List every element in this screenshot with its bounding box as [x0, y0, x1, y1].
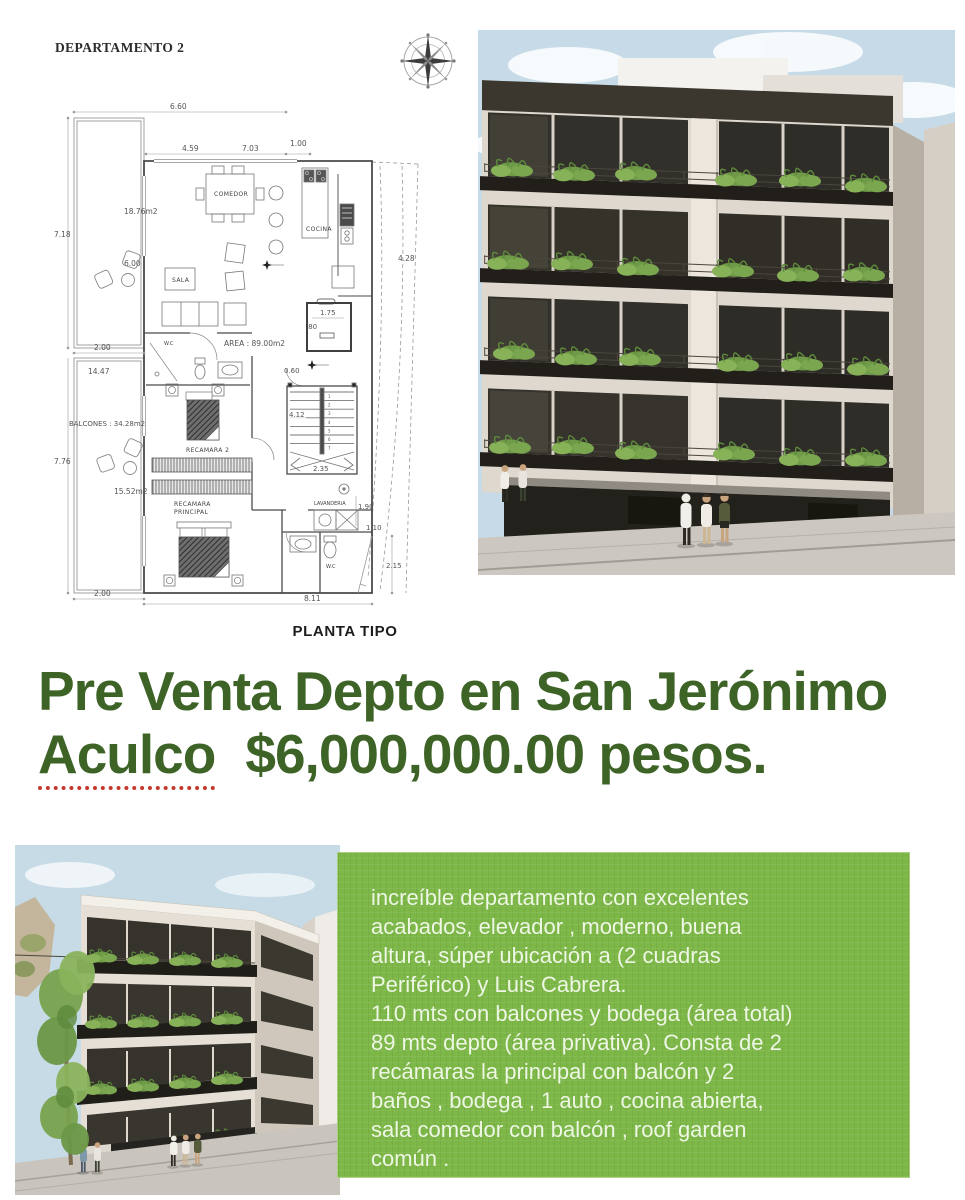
master-bed: [164, 522, 243, 586]
room-wc1: W.C: [164, 341, 174, 347]
level-markers: [262, 260, 329, 370]
floorplan-title: DEPARTAMENTO 2: [55, 40, 184, 56]
building-side: [893, 125, 924, 575]
dim-811: 8.11: [304, 594, 321, 603]
dim-1447: 14.47: [88, 367, 110, 376]
dim-200a: 2.00: [94, 343, 111, 352]
neighbor-wall: [924, 122, 955, 575]
dim-100: 1.00: [290, 139, 307, 148]
dim-428: 4.28: [398, 254, 415, 263]
dim-703: 7.03: [242, 144, 259, 153]
label-balcones: BALCONES : 34.28m2: [69, 420, 145, 428]
label-area: AREA : 89.00m2: [224, 339, 285, 348]
headline-line1: Pre Venta Depto en San Jerónimo: [38, 660, 950, 722]
description-box: increíble departamento con excelentes ac…: [337, 852, 910, 1178]
svg-text:7: 7: [328, 446, 331, 451]
dim-110: 1.10: [366, 524, 382, 532]
headline-price: $6,000,000.00 pesos.: [245, 723, 766, 785]
dim-060: 0.60: [284, 367, 300, 375]
svg-text:2: 2: [328, 403, 331, 408]
stairs: [287, 383, 357, 474]
balcony-chairs-upper: [94, 250, 141, 289]
living-furniture: [162, 243, 246, 326]
room-comedor: COMEDOR: [214, 191, 248, 198]
headline-city: Aculco: [38, 723, 215, 790]
dim-215: 2.15: [386, 562, 402, 570]
svg-text:4: 4: [328, 420, 331, 425]
laundry: [314, 484, 358, 530]
cloud: [215, 873, 315, 897]
stair-numbers: 1 2 3 4 5 6 7: [328, 394, 331, 451]
svg-text:3: 3: [328, 411, 331, 416]
flyer-page: DEPARTAMENTO 2: [0, 0, 965, 1200]
svg-text:1: 1: [328, 394, 331, 399]
dim-190: 1.90: [358, 503, 374, 511]
building-render-corner: [15, 845, 340, 1195]
dim-718: 7.18: [54, 230, 71, 239]
label-area-lower: 15.52m2: [114, 487, 148, 496]
room-recamara-p2: PRINCIPAL: [174, 509, 209, 516]
headline: Pre Venta Depto en San Jerónimo Aculco$6…: [38, 660, 950, 786]
room-recamara-p1: RECAMARA: [174, 501, 211, 508]
balcony-chairs-lower: [96, 438, 143, 475]
compass-rose-icon: [396, 29, 460, 93]
cloud: [25, 862, 115, 888]
dim-776: 7.76: [54, 457, 71, 466]
dim-412: 4.12: [289, 411, 305, 419]
floorplan-drawing: 6.60 4.59 7.03 1.00 7.18 6.00 2.00 14.47…: [54, 96, 464, 620]
svg-text:6: 6: [328, 437, 331, 442]
wardrobe: [152, 458, 252, 494]
dim-600: 6.00: [124, 259, 141, 268]
bedroom2-furniture: [166, 384, 224, 440]
hill-green: [20, 934, 46, 952]
description-text: increíble departamento con excelentes ac…: [371, 883, 889, 1173]
room-cocina: COCINA: [306, 226, 332, 233]
dim-459: 4.59: [182, 144, 199, 153]
svg-text:5: 5: [328, 428, 331, 433]
balcony-outlines: [74, 118, 144, 593]
room-lavanderia: LAVANDERIA: [314, 501, 346, 507]
label-area-upper: 18.76m2: [124, 207, 158, 216]
dim-175: 1.75: [320, 309, 336, 317]
room-wc2: W.C: [326, 564, 336, 570]
dim-200b: 2.00: [94, 589, 111, 598]
headline-line2: Aculco$6,000,000.00 pesos.: [38, 722, 950, 786]
building-render-front: [478, 30, 955, 575]
dim-660: 6.60: [170, 102, 187, 111]
dim-235: 2.35: [313, 465, 329, 473]
room-sala: SALA: [172, 277, 190, 284]
floorplan-caption: PLANTA TIPO: [250, 623, 440, 640]
room-recamara2: RECAMARA 2: [186, 447, 229, 454]
